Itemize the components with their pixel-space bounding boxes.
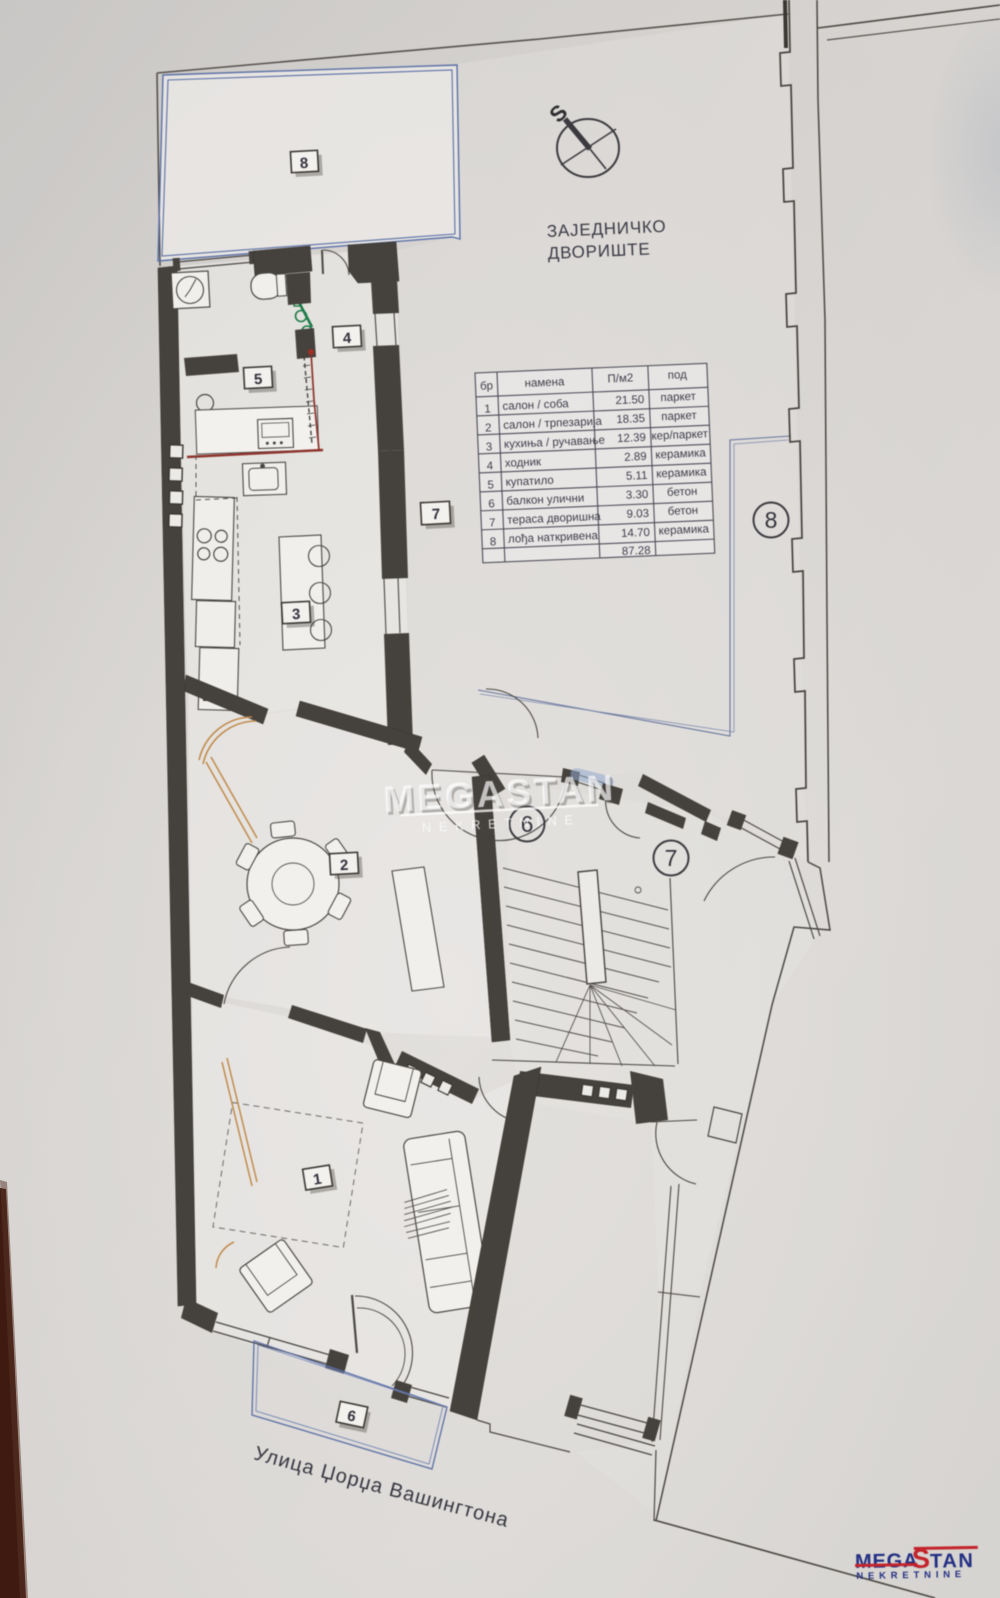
svg-text:14.70: 14.70 bbox=[621, 527, 650, 540]
svg-text:7: 7 bbox=[431, 506, 440, 523]
svg-text:8: 8 bbox=[490, 536, 497, 548]
svg-text:керамика: керамика bbox=[658, 523, 709, 537]
svg-text:6: 6 bbox=[488, 498, 495, 510]
svg-text:2.89: 2.89 bbox=[624, 451, 647, 464]
svg-text:2: 2 bbox=[485, 422, 492, 434]
svg-text:2: 2 bbox=[340, 857, 349, 874]
svg-text:керамика: керамика bbox=[656, 466, 707, 480]
svg-text:5: 5 bbox=[254, 371, 263, 388]
svg-text:NEKRETNINE: NEKRETNINE bbox=[856, 1569, 966, 1582]
svg-text:бетон: бетон bbox=[668, 505, 699, 518]
svg-text:ходник: ходник bbox=[505, 456, 543, 470]
svg-text:9.03: 9.03 bbox=[626, 508, 649, 521]
svg-text:5.11: 5.11 bbox=[626, 470, 648, 483]
svg-text:паркет: паркет bbox=[661, 410, 698, 424]
svg-text:1: 1 bbox=[484, 403, 491, 415]
svg-text:5: 5 bbox=[487, 479, 494, 491]
svg-text:3: 3 bbox=[486, 441, 493, 453]
svg-text:3.30: 3.30 bbox=[626, 489, 649, 502]
svg-text:7: 7 bbox=[489, 517, 496, 529]
svg-text:18.35: 18.35 bbox=[616, 413, 645, 426]
svg-text:П/м2: П/м2 bbox=[607, 372, 633, 385]
svg-text:3: 3 bbox=[292, 606, 301, 623]
svg-text:намена: намена bbox=[524, 376, 565, 390]
svg-text:8: 8 bbox=[299, 155, 308, 172]
svg-text:21.50: 21.50 bbox=[615, 394, 644, 407]
svg-text:кер/паркет: кер/паркет bbox=[651, 428, 709, 442]
svg-text:бетон: бетон bbox=[667, 486, 698, 499]
svg-text:12.39: 12.39 bbox=[617, 432, 646, 445]
svg-text:87.28: 87.28 bbox=[622, 545, 651, 558]
svg-text:4: 4 bbox=[342, 330, 352, 347]
svg-text:керамика: керамика bbox=[655, 447, 706, 461]
svg-text:7: 7 bbox=[665, 845, 678, 871]
svg-text:под: под bbox=[667, 369, 687, 382]
svg-text:4: 4 bbox=[486, 460, 493, 472]
svg-text:бр: бр bbox=[480, 380, 493, 393]
svg-text:8: 8 bbox=[765, 507, 778, 533]
svg-text:купатило: купатило bbox=[505, 475, 554, 489]
svg-text:паркет: паркет bbox=[660, 391, 697, 405]
